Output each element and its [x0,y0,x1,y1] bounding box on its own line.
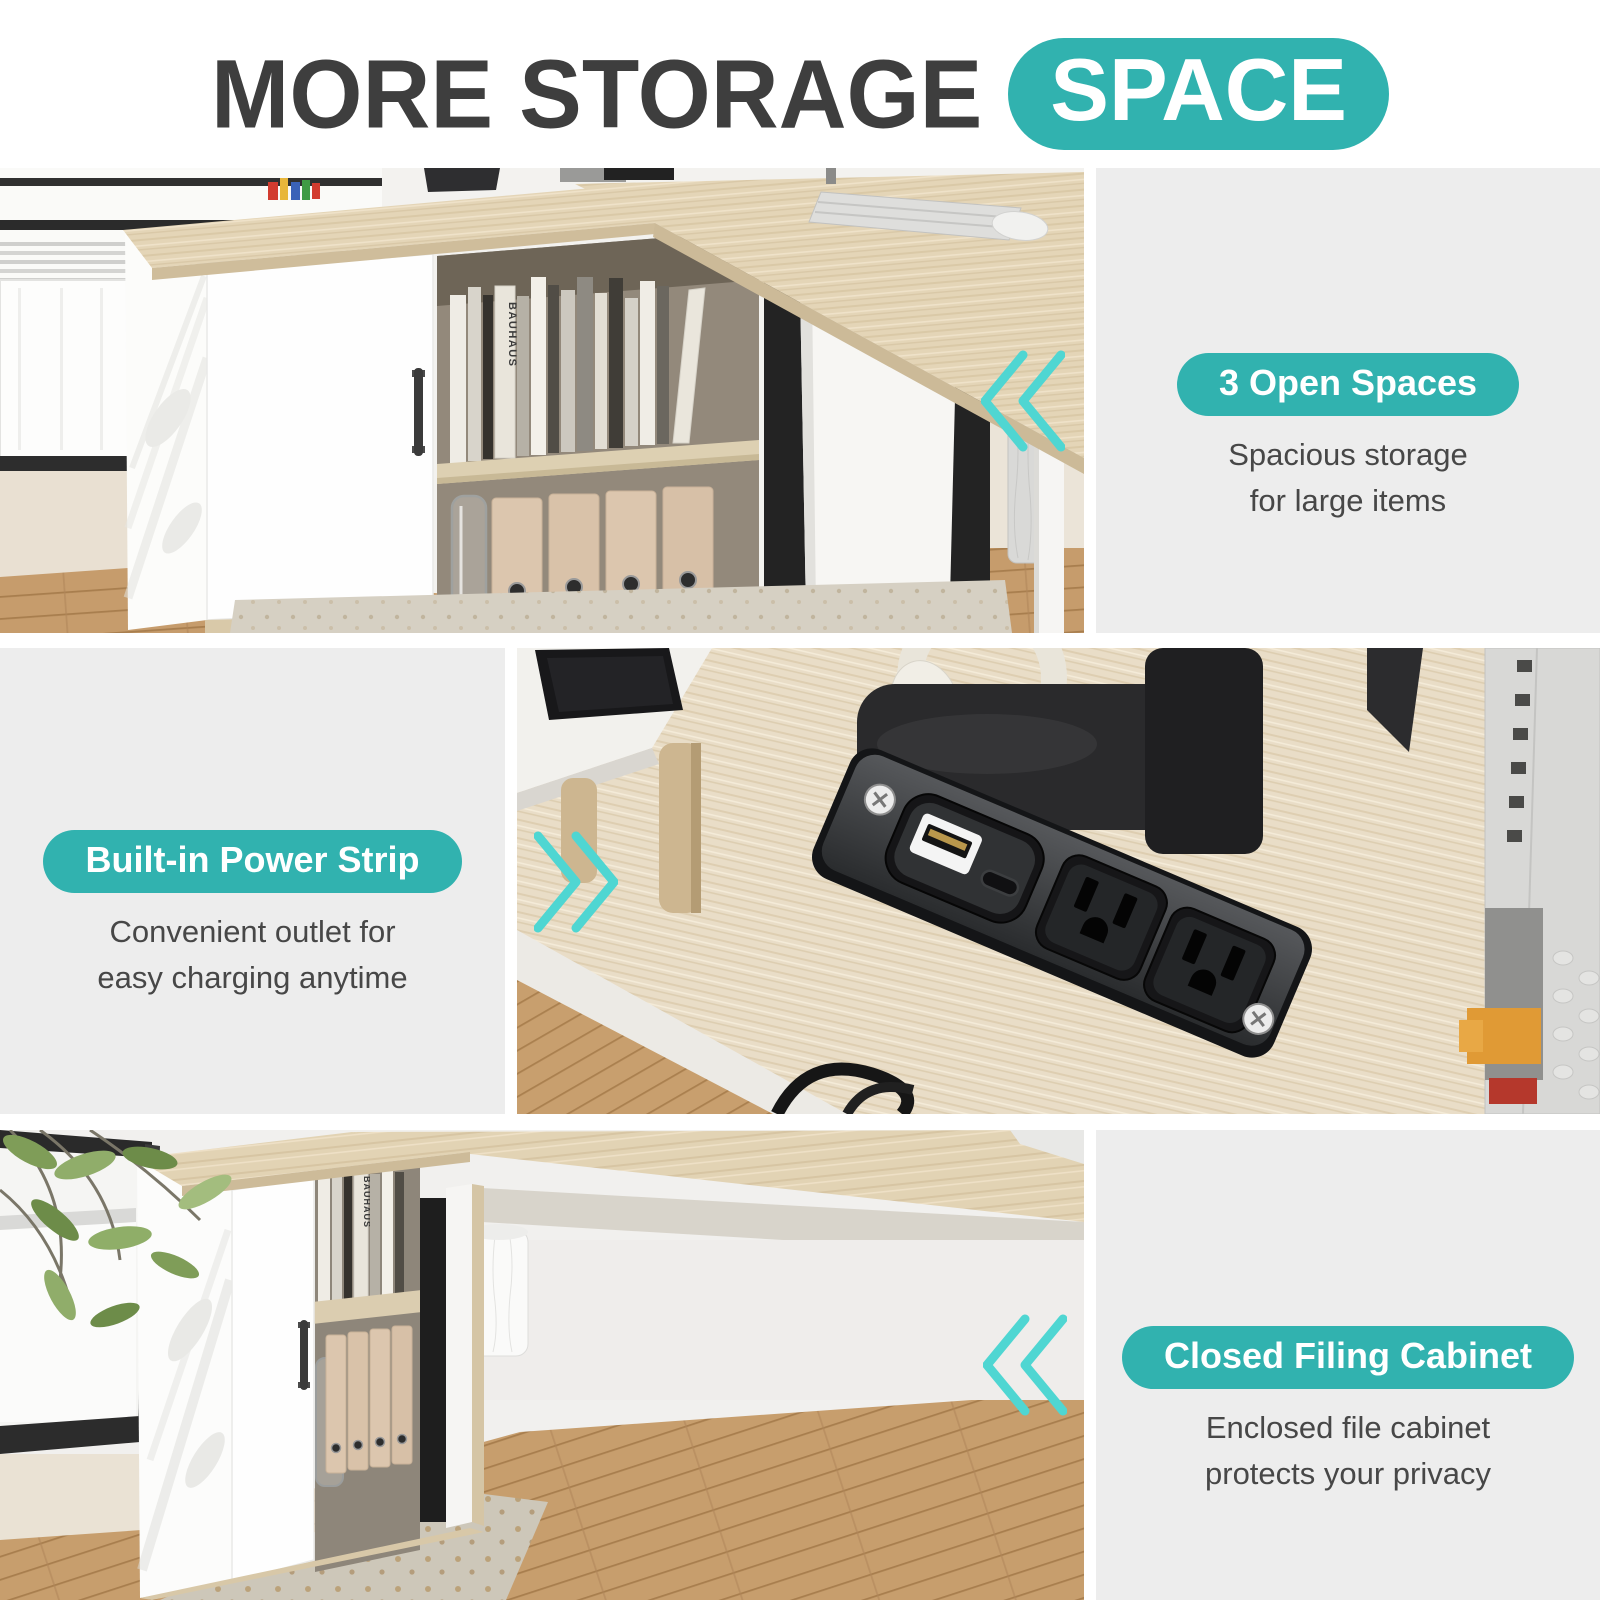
door-handle [414,368,423,456]
feature-desc-power-strip: Convenient outlet for easy charging anyt… [97,909,407,1002]
feature-badge-open-spaces: 3 Open Spaces [1177,353,1519,416]
speaker [424,168,500,192]
title-badge: SPACE [1008,38,1389,151]
photo-open-storage: BAUHAUS [0,168,1084,633]
radiator [0,280,128,577]
books-top-shelf: BAUHAUS [450,277,705,463]
double-chevron-left-icon [981,350,1065,452]
feature-badge-power-strip: Built-in Power Strip [43,830,461,893]
panel-power-strip: Built-in Power Strip Convenient outlet f… [0,648,505,1114]
desc-line: protects your privacy [1205,1451,1491,1498]
photo-power-strip [517,648,1600,1114]
feature-badge-filing-cabinet: Closed Filing Cabinet [1122,1326,1574,1389]
feature-desc-filing-cabinet: Enclosed file cabinet protects your priv… [1205,1405,1491,1498]
double-chevron-left-icon [983,1313,1067,1417]
desc-line: Spacious storage [1228,432,1468,479]
desc-line: Enclosed file cabinet [1205,1405,1491,1452]
feature-desc-open-spaces: Spacious storage for large items [1228,432,1468,525]
power-strip-illustration [517,648,1600,1114]
filing-cabinet-illustration: BAUHAUS [0,1130,1084,1600]
door-handle [300,1320,308,1390]
book-spine-label: BAUHAUS [506,302,518,368]
pc-tower-dark [420,1198,446,1522]
open-storage-illustration: BAUHAUS [0,168,1084,633]
page-title: MORE STORAGE SPACE [0,34,1600,154]
cabinet-door [207,254,433,620]
side-white-panel [446,1184,472,1528]
desc-line: easy charging anytime [97,955,407,1002]
desc-line: for large items [1228,478,1468,525]
double-chevron-right-icon [534,831,618,933]
panel-open-spaces: 3 Open Spaces Spacious storage for large… [1096,168,1600,633]
title-text: MORE STORAGE [211,38,982,150]
panel-filing-cabinet: Closed Filing Cabinet Enclosed file cabi… [1096,1130,1600,1600]
photo-filing-cabinet: BAUHAUS [0,1130,1084,1600]
desc-line: Convenient outlet for [97,909,407,956]
